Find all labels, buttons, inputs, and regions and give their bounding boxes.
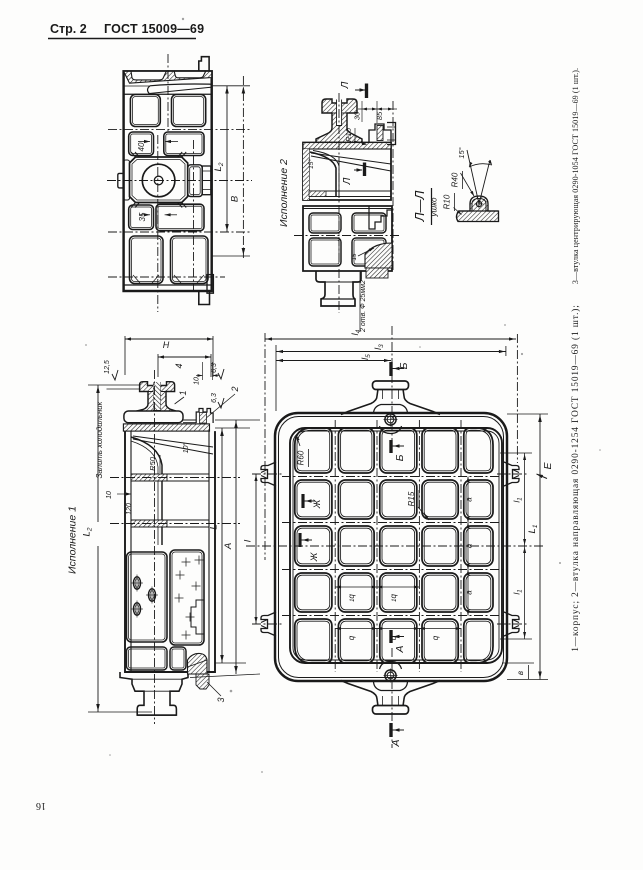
svg-text:30: 30 (353, 111, 362, 120)
svg-text:Ж: Ж (312, 498, 323, 509)
svg-text:R15: R15 (407, 491, 416, 506)
svg-text:q: q (389, 635, 398, 640)
svg-text:А: А (390, 739, 402, 747)
svg-text:в: в (516, 671, 525, 675)
svg-text:Исполнение 1: Исполнение 1 (67, 506, 79, 574)
svg-text:L: L (209, 524, 220, 529)
svg-text:120: 120 (126, 503, 133, 515)
svg-text:ГОСТ 15009—69: ГОСТ 15009—69 (104, 22, 204, 36)
svg-text:R60: R60 (297, 450, 306, 465)
svg-text:R10: R10 (443, 194, 452, 209)
svg-text:Б: Б (398, 362, 410, 369)
svg-text:R40: R40 (451, 172, 460, 187)
svg-text:Залить холодильник: Залить холодильник (95, 401, 104, 478)
svg-text:R10: R10 (344, 127, 353, 142)
svg-text:10: 10 (106, 491, 113, 499)
svg-text:Л—Л: Л—Л (412, 191, 427, 223)
svg-text:q: q (431, 635, 440, 640)
svg-text:1: 1 (178, 390, 188, 395)
svg-text:ушко: ушко (430, 197, 439, 217)
svg-text:Исполнение 2: Исполнение 2 (278, 159, 290, 227)
svg-text:15: 15 (352, 253, 358, 260)
svg-text:10°: 10° (182, 443, 190, 454)
svg-text:Л: Л (340, 81, 351, 89)
svg-text:16: 16 (36, 800, 46, 811)
svg-text:15°: 15° (307, 159, 315, 169)
svg-text:10: 10 (194, 377, 201, 385)
svg-text:4: 4 (174, 363, 184, 368)
svg-text:12,5: 12,5 (104, 360, 111, 374)
svg-text:E: E (542, 462, 554, 470)
svg-text:Ж: Ж (309, 551, 320, 562)
svg-text:a: a (465, 497, 474, 502)
svg-text:Б: Б (394, 454, 406, 461)
svg-text:R50: R50 (148, 456, 157, 471)
svg-text:Л: Л (342, 177, 353, 185)
svg-text:q: q (347, 635, 356, 640)
svg-text:40: 40 (137, 142, 146, 151)
svg-text:H: H (163, 340, 170, 350)
svg-text:85: 85 (375, 111, 384, 120)
svg-text:B: B (230, 195, 241, 202)
svg-text:A: A (223, 543, 234, 550)
svg-text:1—корпус; 2—втулка направляющ: 1—корпус; 2—втулка направляющая 0290-125… (570, 304, 581, 652)
svg-text:2 отв. Ф 25мм2: 2 отв. Ф 25мм2 (360, 280, 367, 333)
svg-text:Стр. 2: Стр. 2 (50, 22, 87, 36)
svg-text:3—втулка центрирующая 0290-105: 3—втулка центрирующая 0290-1054 ГОСТ 150… (571, 68, 580, 284)
svg-text:a: a (465, 590, 474, 595)
svg-text:2: 2 (230, 386, 240, 392)
svg-text:6,3: 6,3 (211, 363, 218, 373)
svg-text:3: 3 (216, 697, 226, 702)
svg-text:35: 35 (138, 212, 147, 221)
svg-text:15°: 15° (457, 147, 466, 158)
svg-text:А: А (394, 645, 406, 653)
svg-text:a: a (465, 543, 474, 548)
svg-text:6,3: 6,3 (211, 393, 218, 403)
